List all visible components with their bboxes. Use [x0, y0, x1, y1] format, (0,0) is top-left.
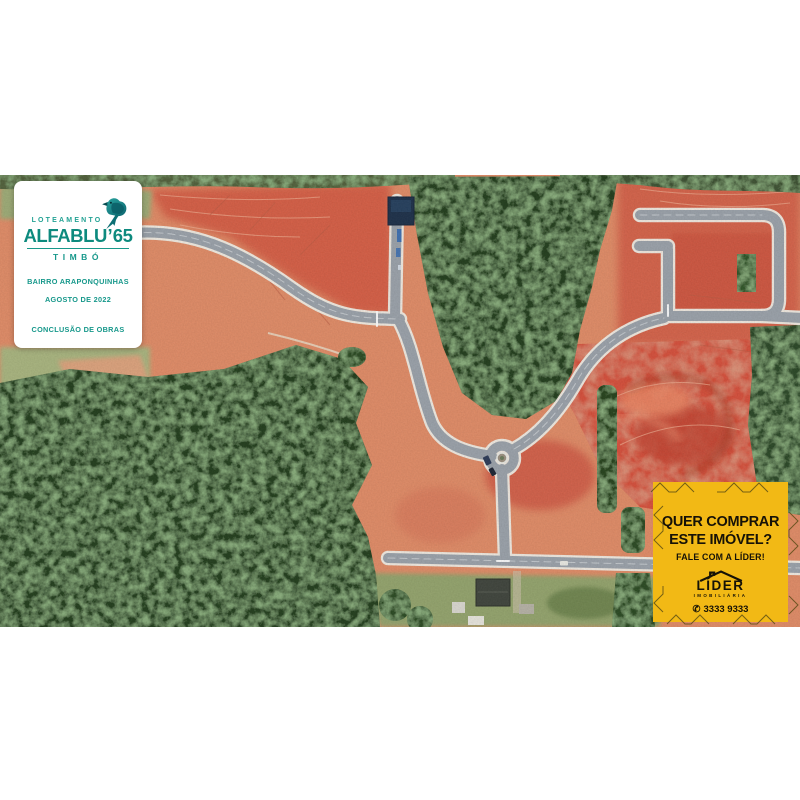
date-badge: AGOSTO DE 2022	[14, 295, 142, 304]
roof-icon	[339, 633, 465, 667]
phone-number: 3333 9333	[704, 604, 749, 615]
brand-panel: LOTEAMENTO ALFABLU65 TIMBÓ BAIRRO ARAPON…	[14, 181, 142, 348]
agency-logo: LÍDER IMOBILIÁRIA	[653, 569, 788, 598]
loteamento-label: LOTEAMENTO	[20, 217, 114, 224]
cta-box: QUER COMPRAR ESTE IMÓVEL? FALE COM A LÍD…	[653, 482, 788, 622]
phone-icon	[693, 604, 704, 615]
neighborhood-badge: BAIRRO ARAPONQUINHAS	[14, 277, 142, 286]
development-name-text: ALFABLU	[23, 225, 107, 246]
development-name: ALFABLU65	[14, 225, 142, 247]
watermark-subtitle: IMOBILIÁRIA	[318, 700, 486, 712]
status-badge: CONCLUSÃO DE OBRAS	[14, 325, 142, 334]
cta-line1: QUER COMPRAR	[653, 513, 788, 531]
city-label: TIMBÓ	[27, 248, 129, 262]
cta-line2: ESTE IMÓVEL?	[653, 531, 788, 549]
cta-line3: FALE COM A LÍDER!	[653, 552, 788, 562]
phone-row: 3333 9333	[653, 604, 788, 615]
agency-logo-name: LÍDER	[653, 580, 788, 591]
development-number: 65	[113, 225, 133, 246]
promo-image: LÍDER IMOBILIÁRIA LOTEAMENTO ALFABLU65 T…	[0, 0, 800, 800]
watermark-name: LÍDER	[318, 652, 486, 695]
watermark: LÍDER IMOBILIÁRIA	[318, 633, 486, 712]
agency-logo-subtitle: IMOBILIÁRIA	[653, 593, 788, 598]
